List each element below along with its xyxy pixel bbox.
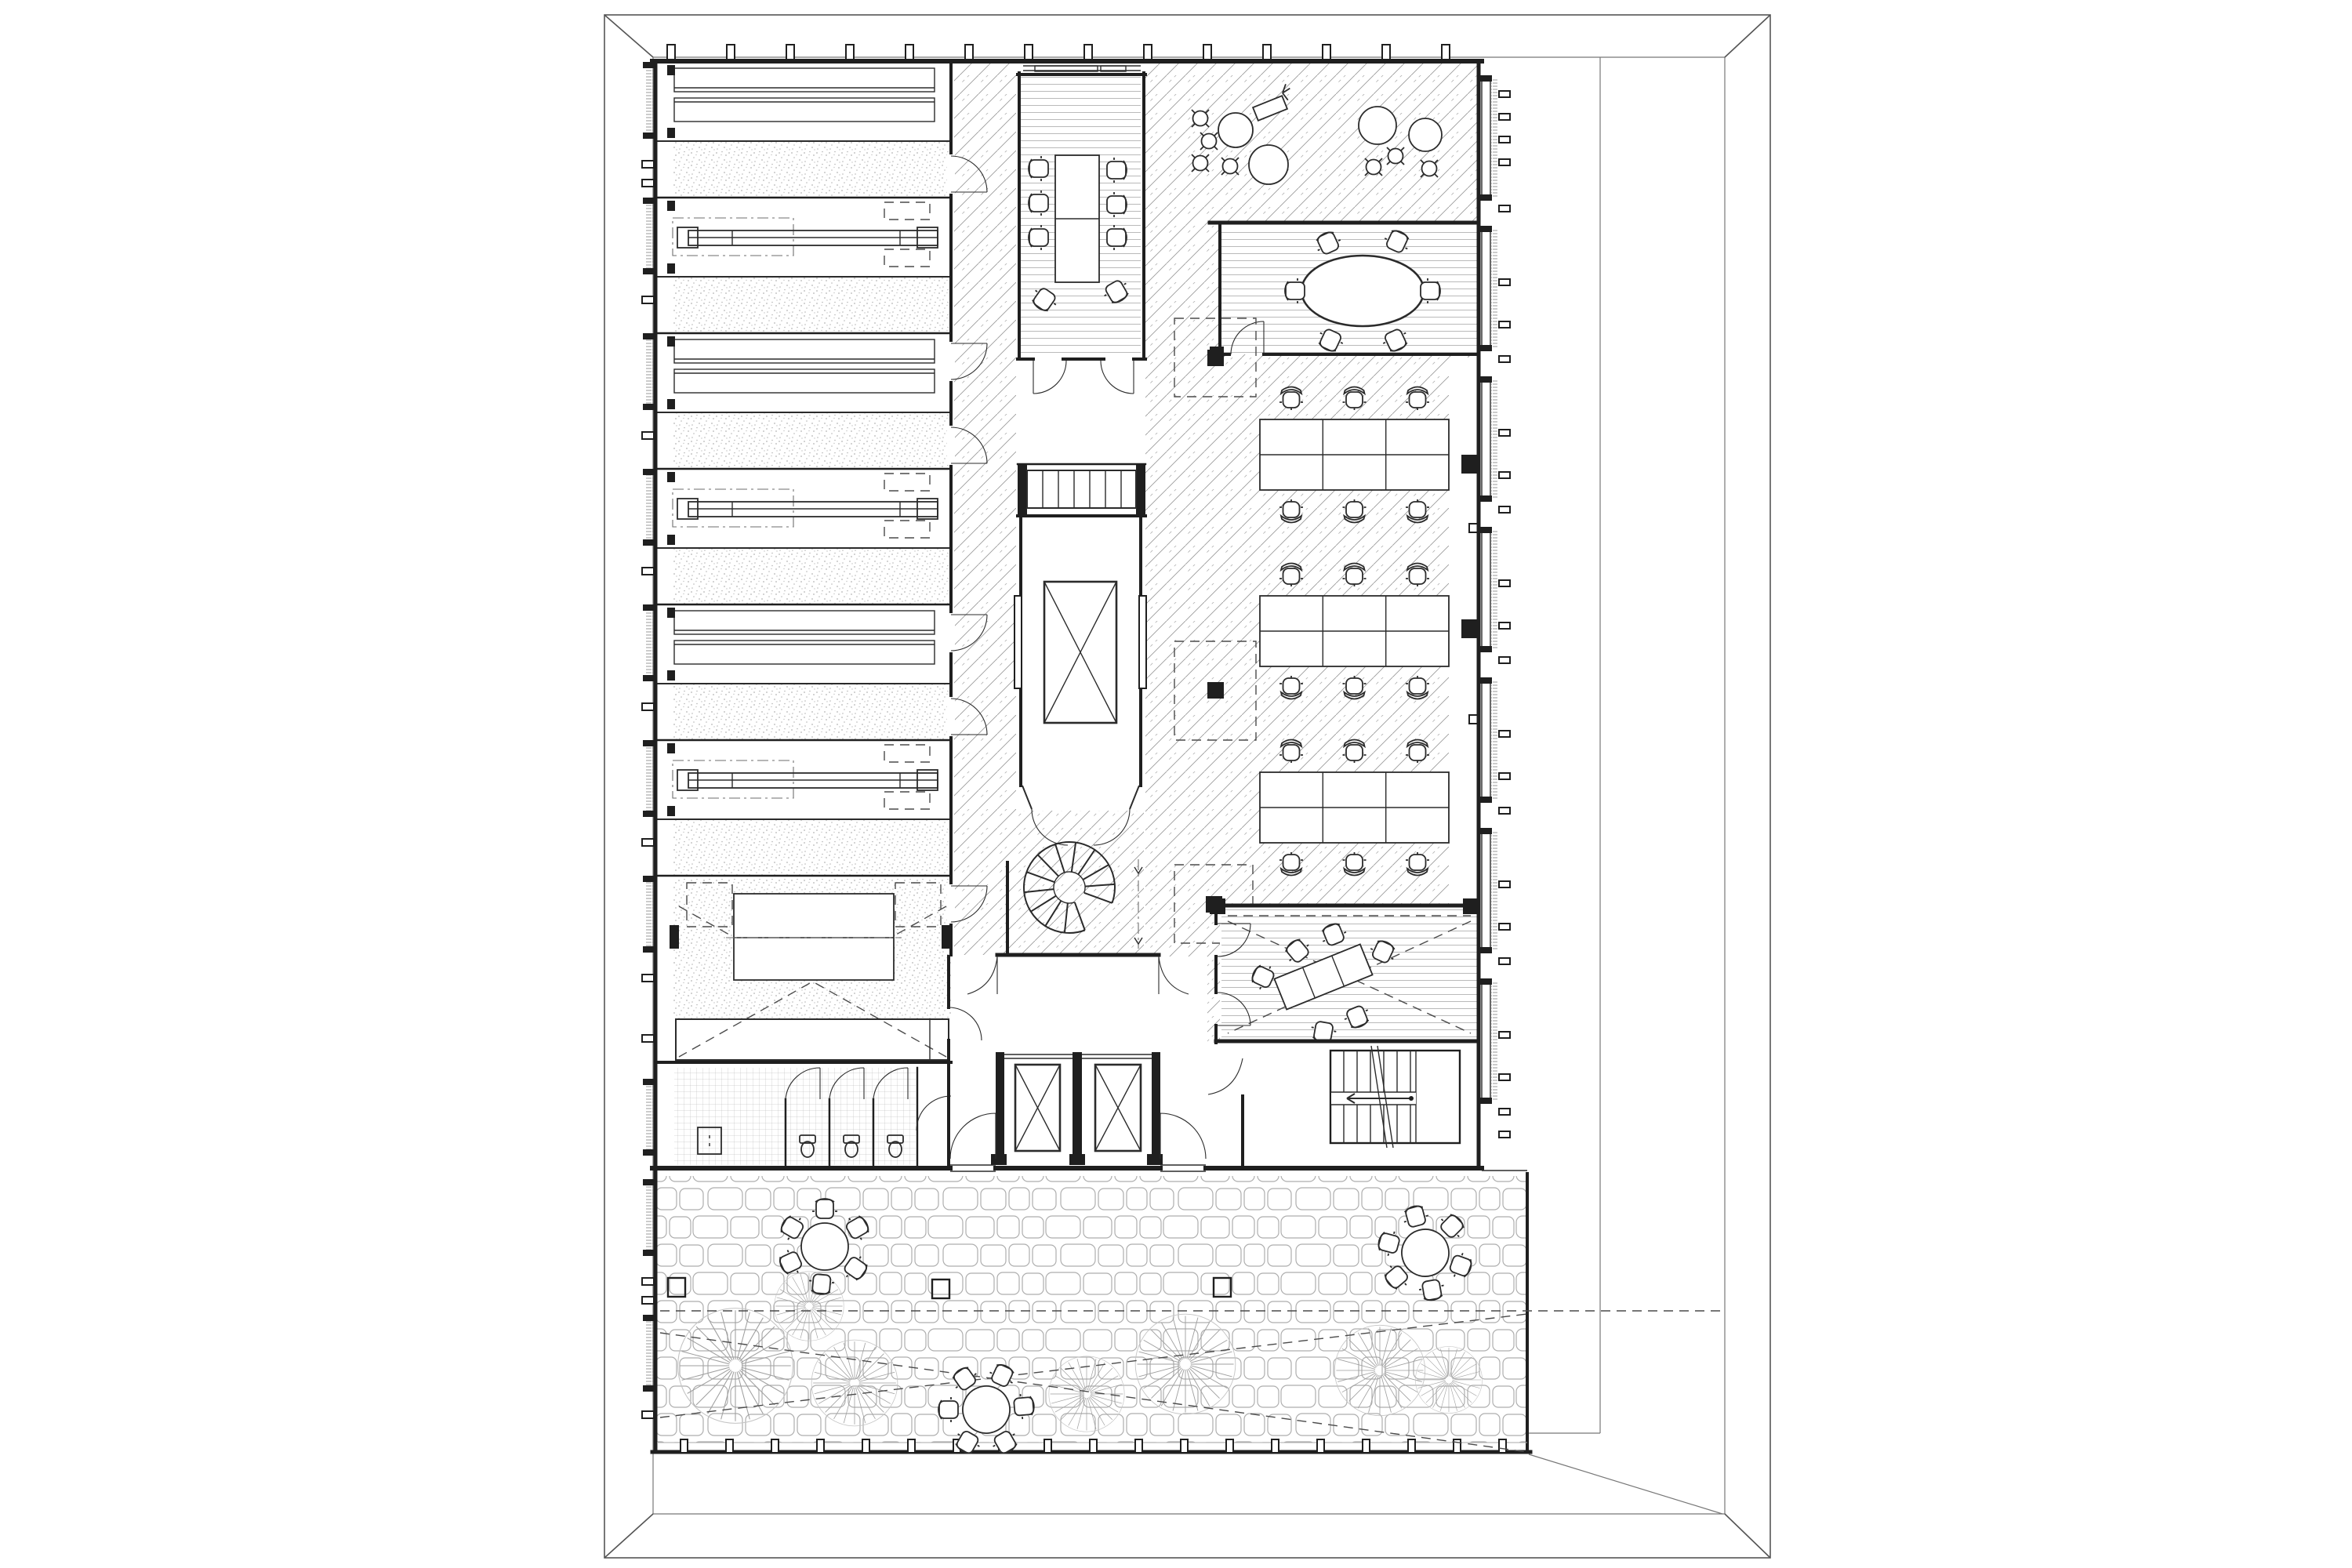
meeting-room-south: [1210, 898, 1479, 1044]
stool-icon: [1200, 132, 1218, 150]
round-table: [1249, 145, 1288, 184]
round-table: [1409, 118, 1442, 151]
spiral-hall-floor: [1016, 811, 1144, 955]
stool-icon: [1192, 110, 1209, 127]
conference-room: [1018, 66, 1145, 394]
multipurpose-room: [655, 878, 951, 1062]
stool-icon: [1421, 160, 1438, 177]
restroom: [674, 1068, 951, 1165]
meeting-room-north: [1210, 223, 1479, 361]
site-parcel-line: [1529, 57, 1600, 1433]
round-table: [1359, 107, 1396, 144]
page: { "document": { "kind": "architectural f…: [0, 0, 2352, 1568]
stool-icon: [1221, 158, 1239, 175]
desk-cluster: [1260, 564, 1449, 699]
left-wing: [655, 65, 951, 1165]
demo-table: [734, 894, 894, 980]
platform: [676, 1019, 949, 1060]
site-diagonal: [1529, 1454, 1722, 1514]
corridor-floor: [954, 62, 1016, 955]
desk-cluster: [1260, 387, 1449, 523]
column-icon: [1207, 682, 1224, 699]
desk-cluster: [1260, 740, 1449, 876]
floor-plan-canvas: [0, 0, 2352, 1568]
south-strip-floor: [1145, 1043, 1479, 1168]
round-table: [1218, 113, 1253, 147]
column-icon: [1207, 350, 1224, 366]
stool-icon: [1387, 147, 1404, 165]
west-facade: [642, 62, 655, 1418]
stool-icon: [1365, 158, 1382, 176]
open-office-floor: [1145, 62, 1479, 1043]
east-facade: [1479, 75, 1510, 1138]
stool-icon: [1192, 154, 1209, 172]
wing-rooms: [655, 65, 951, 876]
oval-table: [1301, 256, 1424, 326]
